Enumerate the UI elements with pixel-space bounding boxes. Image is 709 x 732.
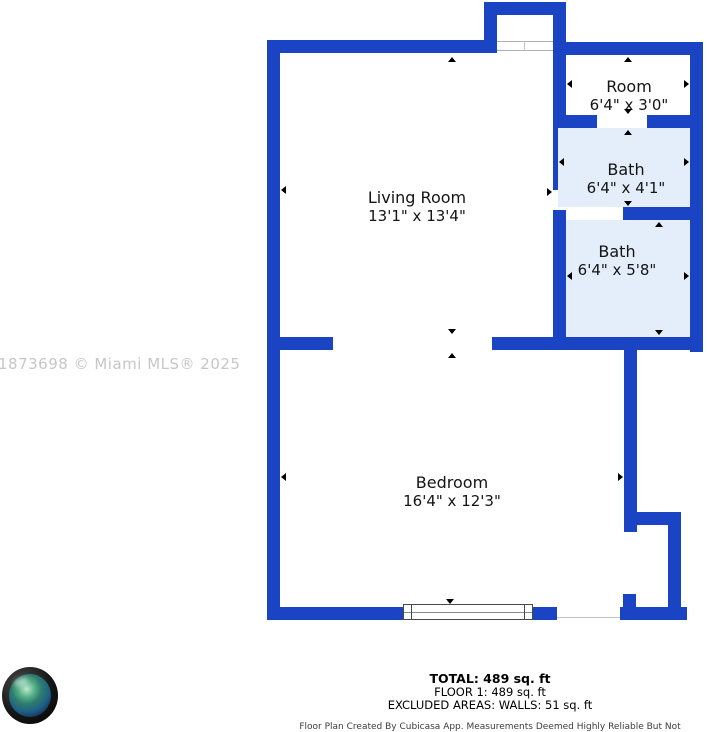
measure-arrow-left-icon <box>567 272 572 280</box>
bedroom-door-line <box>557 617 620 618</box>
bath-2-label: Bath 6'4" x 5'8" <box>578 242 657 280</box>
wall-mid-divider-right <box>492 337 703 350</box>
wall-top-right <box>553 42 703 55</box>
measure-arrow-down-icon <box>624 109 632 114</box>
wall-left <box>267 40 280 620</box>
measure-arrow-right-icon <box>684 272 689 280</box>
area-summary: TOTAL: 489 sq. ft FLOOR 1: 489 sq. ft EX… <box>330 671 650 711</box>
wall-bottom-mid <box>533 607 557 620</box>
measure-arrow-up-icon <box>448 353 456 358</box>
measure-arrow-up-icon <box>624 130 632 135</box>
measure-arrow-left-icon <box>559 158 564 166</box>
bath-2-name: Bath <box>578 242 657 261</box>
window-frame-right <box>524 605 525 619</box>
room-name: Room <box>590 77 669 96</box>
floor-plan-page: Living Room 13'1" x 13'4" Room 6'4" x 3'… <box>0 0 709 732</box>
measure-arrow-right-icon <box>684 80 689 88</box>
window-pane-line <box>404 612 532 613</box>
measure-arrow-right-icon <box>684 158 689 166</box>
wall-bottom-left <box>267 607 403 620</box>
measure-arrow-down-icon <box>655 330 663 335</box>
wall-top-left <box>267 40 497 53</box>
measure-arrow-up-icon <box>655 222 663 227</box>
measure-arrow-up-icon <box>448 57 456 62</box>
entry-door-opening <box>497 41 553 51</box>
measure-arrow-left-icon <box>281 473 286 481</box>
wall-room-bottom-left <box>553 115 597 128</box>
total-area: TOTAL: 489 sq. ft <box>330 671 650 686</box>
living-room-name: Living Room <box>368 188 466 207</box>
bath-1-dimensions: 6'4" x 4'1" <box>587 179 666 198</box>
wall-nook-bottom <box>620 607 687 620</box>
measure-arrow-left-icon <box>567 80 572 88</box>
measure-arrow-right-icon <box>547 188 552 196</box>
wall-livingroom-bath-thin <box>553 128 558 190</box>
floor-area: FLOOR 1: 489 sq. ft <box>330 686 650 699</box>
measure-arrow-left-icon <box>281 186 286 194</box>
measure-arrow-right-icon <box>618 473 623 481</box>
entry-door-tick <box>524 41 525 51</box>
window-frame-left <box>411 605 412 619</box>
living-room-label: Living Room 13'1" x 13'4" <box>368 188 466 226</box>
measure-arrow-down-icon <box>448 329 456 334</box>
bedroom-label: Bedroom 16'4" x 12'3" <box>403 473 501 511</box>
wall-room-bottom-right <box>647 115 703 128</box>
wall-livingroom-bath-lower <box>553 210 566 350</box>
bedroom-name: Bedroom <box>403 473 501 492</box>
mls-watermark: 1873698 © Miami MLS® 2025 <box>0 355 240 373</box>
bath-1-name: Bath <box>587 160 666 179</box>
excluded-area: EXCLUDED AREAS: WALLS: 51 sq. ft <box>330 699 650 712</box>
bath-1-label: Bath 6'4" x 4'1" <box>587 160 666 198</box>
wall-mid-divider-stub <box>267 337 333 350</box>
wall-right <box>690 42 703 352</box>
wall-closet-left <box>624 350 637 532</box>
bath-2-dimensions: 6'4" x 5'8" <box>578 261 657 280</box>
measure-arrow-down-icon <box>446 599 454 604</box>
measure-arrow-down-icon <box>624 201 632 206</box>
bedroom-dimensions: 16'4" x 12'3" <box>403 492 501 511</box>
wall-bath-divider <box>623 207 703 220</box>
measure-arrow-up-icon <box>624 57 632 62</box>
bedroom-window <box>403 604 533 620</box>
wall-closet-right <box>668 512 681 620</box>
living-room-dimensions: 13'1" x 13'4" <box>368 207 466 226</box>
disclaimer-text: Floor Plan Created By Cubicasa App. Meas… <box>278 722 702 732</box>
wall-nook-stub <box>623 594 636 607</box>
camera-lens-logo <box>2 667 58 724</box>
